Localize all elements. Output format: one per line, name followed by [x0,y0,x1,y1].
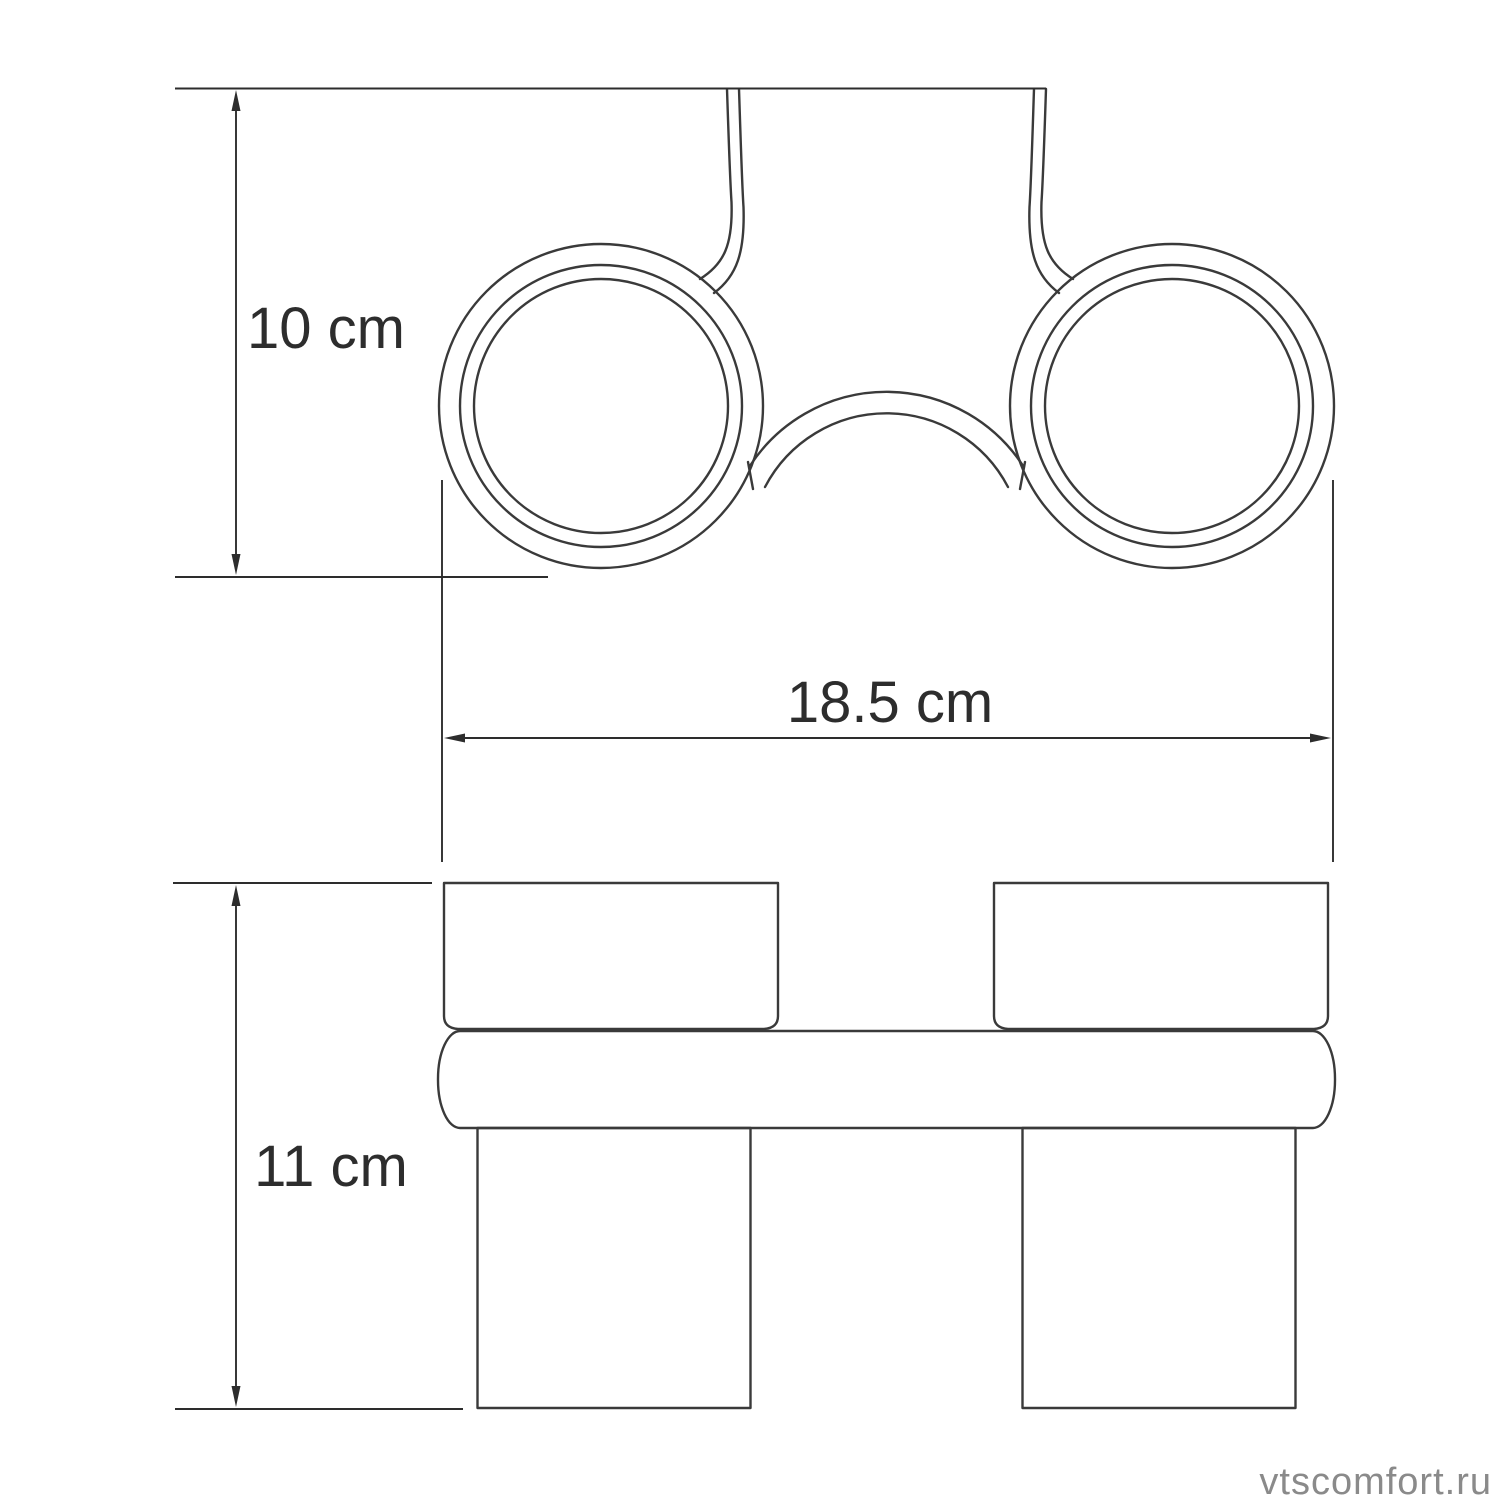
left-ring-inner-circle [474,279,728,533]
dim-18-label: 18.5 cm [787,670,993,735]
left-ring-middle-circle [460,265,742,547]
dim-11-arrowhead-up [232,885,241,906]
stem-left-outer-line [700,89,732,279]
technical-drawing-canvas: 10 cm 18.5 cm 11 c [0,0,1500,1500]
dim-18-arrowhead-left [444,734,465,743]
dim-10-label: 10 cm [247,296,405,361]
drawing-svg: 10 cm 18.5 cm 11 c [0,0,1500,1500]
right-glass-upper [994,883,1328,1029]
right-glass-lower [1023,1128,1296,1408]
dim-10-arrowhead-up [232,90,241,111]
saddle-outer-arc [751,392,1023,465]
watermark: vtscomfort.ru [1259,1461,1492,1500]
dim-11-arrowhead-down [232,1386,241,1407]
left-glass-lower [478,1128,751,1408]
dim-18-arrowhead-right [1310,734,1331,743]
stem-right-outer-line [1041,89,1073,279]
left-glass-upper [444,883,778,1029]
holder-bar [438,1031,1335,1128]
saddle-inner-arc [765,413,1008,487]
dim-11-label: 11 cm [254,1134,408,1199]
dim-10-arrowhead-down [232,554,241,575]
right-ring-middle-circle [1031,265,1313,547]
right-ring-inner-circle [1045,279,1299,533]
front-view [438,883,1335,1408]
top-view [439,89,1334,568]
